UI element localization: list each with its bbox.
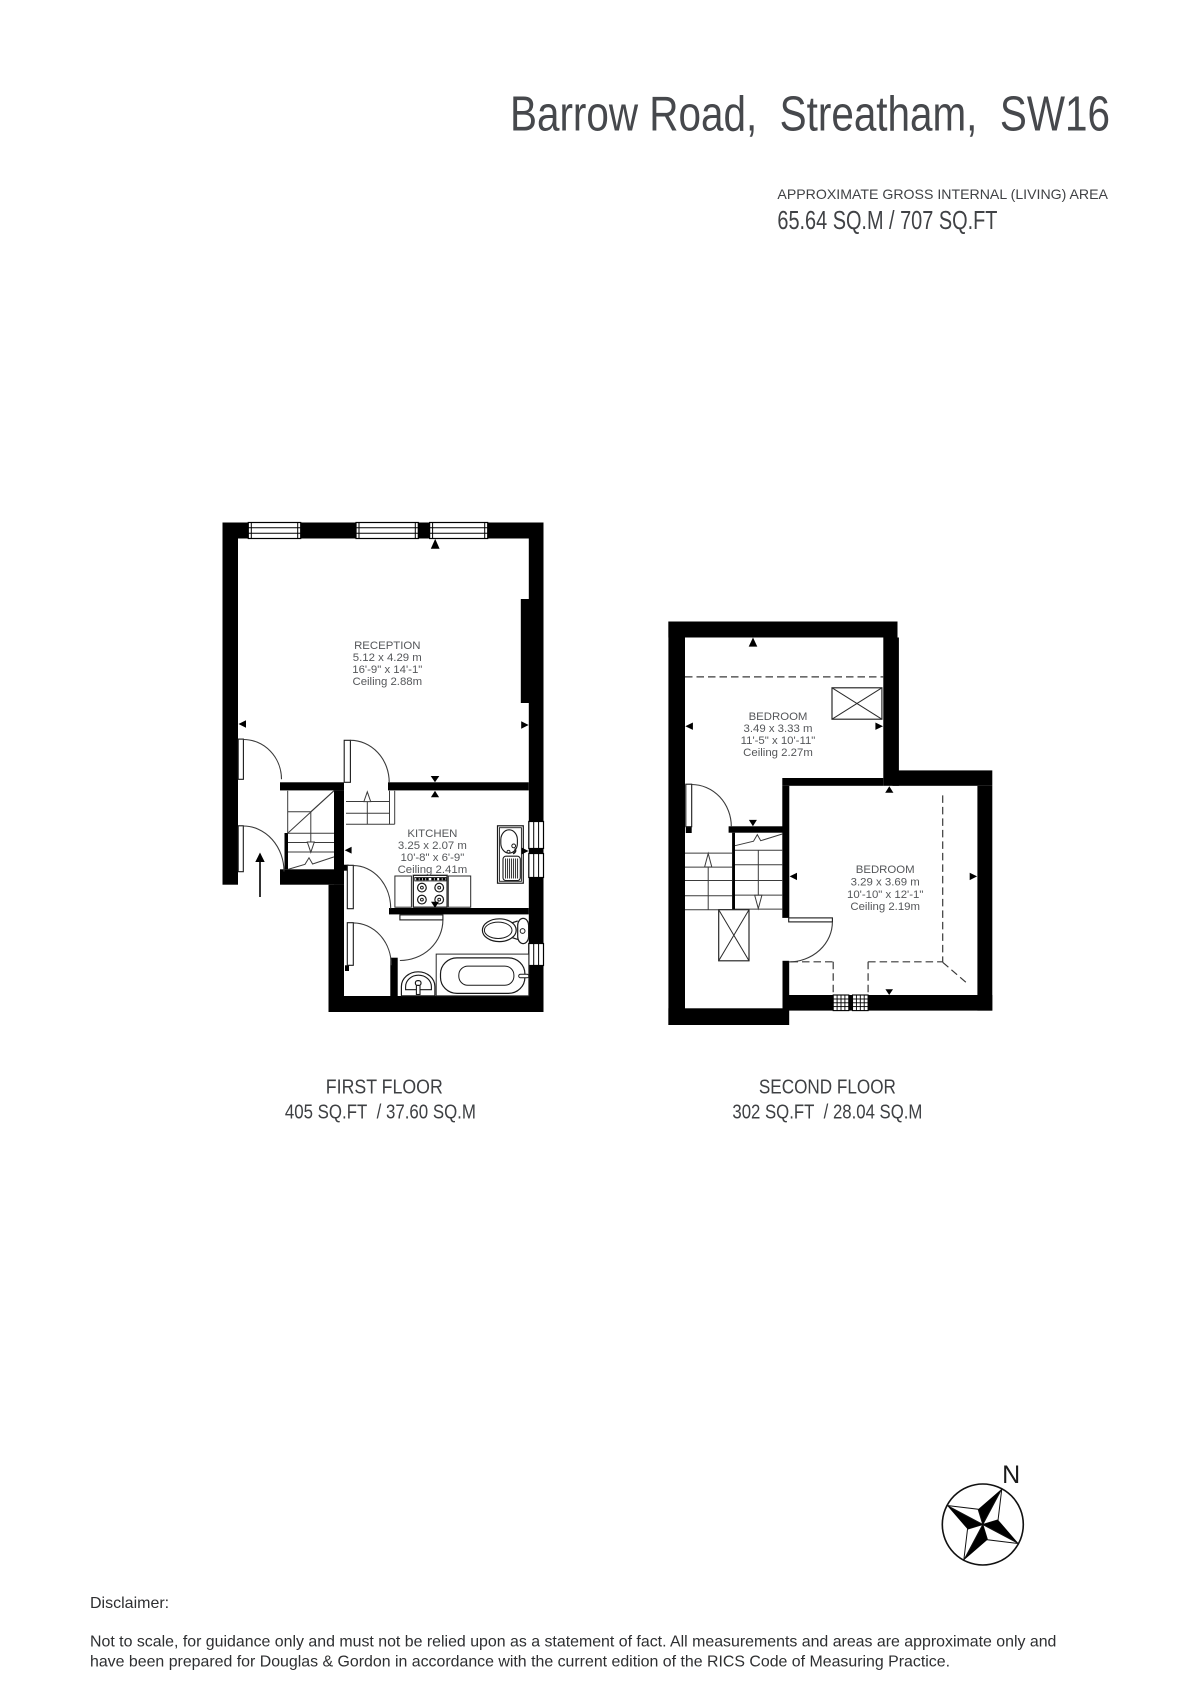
svg-text:BEDROOM: BEDROOM	[749, 711, 808, 723]
svg-text:3.49 x 3.33 m: 3.49 x 3.33 m	[743, 723, 812, 735]
svg-text:KITCHEN: KITCHEN	[407, 828, 457, 840]
svg-text:FIRST FLOOR: FIRST FLOOR	[326, 1077, 443, 1099]
svg-text:16'-9" x 14'-1": 16'-9" x 14'-1"	[352, 664, 422, 676]
svg-text:302 SQ.FT / 28.04 SQ.M: 302 SQ.FT / 28.04 SQ.M	[732, 1102, 922, 1124]
svg-text:11'-5" x 10'-11": 11'-5" x 10'-11"	[741, 735, 816, 747]
svg-text:Ceiling 2.88m: Ceiling 2.88m	[352, 676, 422, 688]
svg-text:3.29 x 3.69 m: 3.29 x 3.69 m	[851, 877, 920, 889]
svg-text:Ceiling 2.41m: Ceiling 2.41m	[398, 864, 468, 876]
svg-text:5.12 x 4.29 m: 5.12 x 4.29 m	[353, 652, 422, 664]
svg-text:N: N	[1002, 1461, 1020, 1489]
svg-text:Not to scale, for guidance onl: Not to scale, for guidance only and must…	[90, 1633, 1056, 1650]
svg-text:have been prepared for Douglas: have been prepared for Douglas & Gordon …	[90, 1653, 950, 1670]
svg-text:65.64 SQ.M / 707 SQ.FT: 65.64 SQ.M / 707 SQ.FT	[777, 205, 997, 235]
svg-text:Disclaimer:: Disclaimer:	[90, 1595, 169, 1612]
svg-text:BEDROOM: BEDROOM	[856, 864, 915, 876]
svg-text:Ceiling 2.27m: Ceiling 2.27m	[743, 747, 813, 759]
svg-text:405 SQ.FT / 37.60 SQ.M: 405 SQ.FT / 37.60 SQ.M	[285, 1102, 476, 1124]
svg-text:10'-8" x 6'-9": 10'-8" x 6'-9"	[401, 852, 465, 864]
svg-text:SECOND FLOOR: SECOND FLOOR	[759, 1077, 896, 1099]
svg-text:3.25 x 2.07 m: 3.25 x 2.07 m	[398, 840, 467, 852]
svg-text:Ceiling 2.19m: Ceiling 2.19m	[850, 901, 920, 913]
svg-text:Barrow Road, Streatham, SW16: Barrow Road, Streatham, SW16	[510, 88, 1110, 142]
svg-text:10'-10" x 12'-1": 10'-10" x 12'-1"	[847, 889, 923, 901]
svg-text:RECEPTION: RECEPTION	[354, 640, 420, 652]
svg-text:APPROXIMATE GROSS INTERNAL (LI: APPROXIMATE GROSS INTERNAL (LIVING) AREA	[777, 186, 1108, 202]
